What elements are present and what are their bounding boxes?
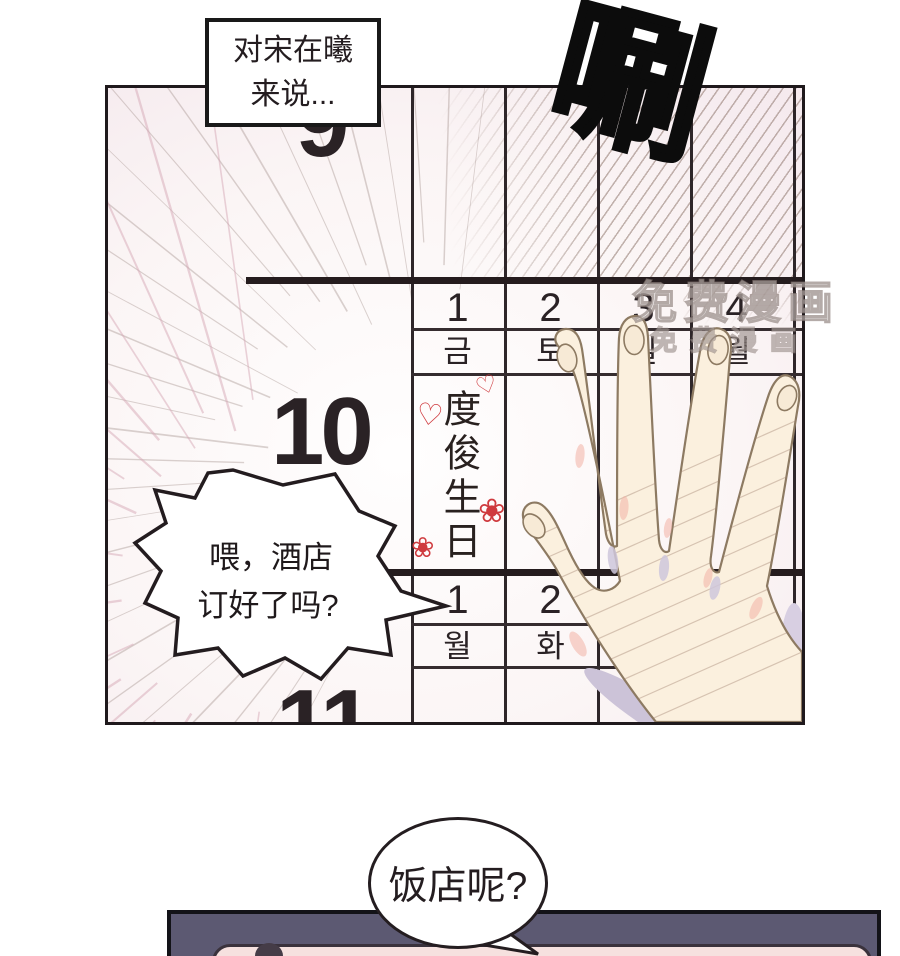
speech-bubble-text: 饭店呢?: [389, 855, 528, 911]
comic-page: 9 10 11 1 2 3 4 금 토 일 월 1 2 월 화 度俊生日 ♡ ♡…: [0, 0, 900, 956]
narration-line1: 对宋在曦: [233, 29, 353, 73]
speech-bubble: 饭店呢?: [368, 817, 548, 949]
narration-box: 对宋在曦 来说...: [205, 18, 381, 127]
shout-bubble-text-line1: 喂，酒店: [168, 536, 374, 579]
narration-line2: 来说...: [250, 73, 335, 117]
watermark-small: 免费漫画: [650, 319, 810, 358]
shout-bubble-text-line2: 订好了吗?: [153, 584, 383, 627]
